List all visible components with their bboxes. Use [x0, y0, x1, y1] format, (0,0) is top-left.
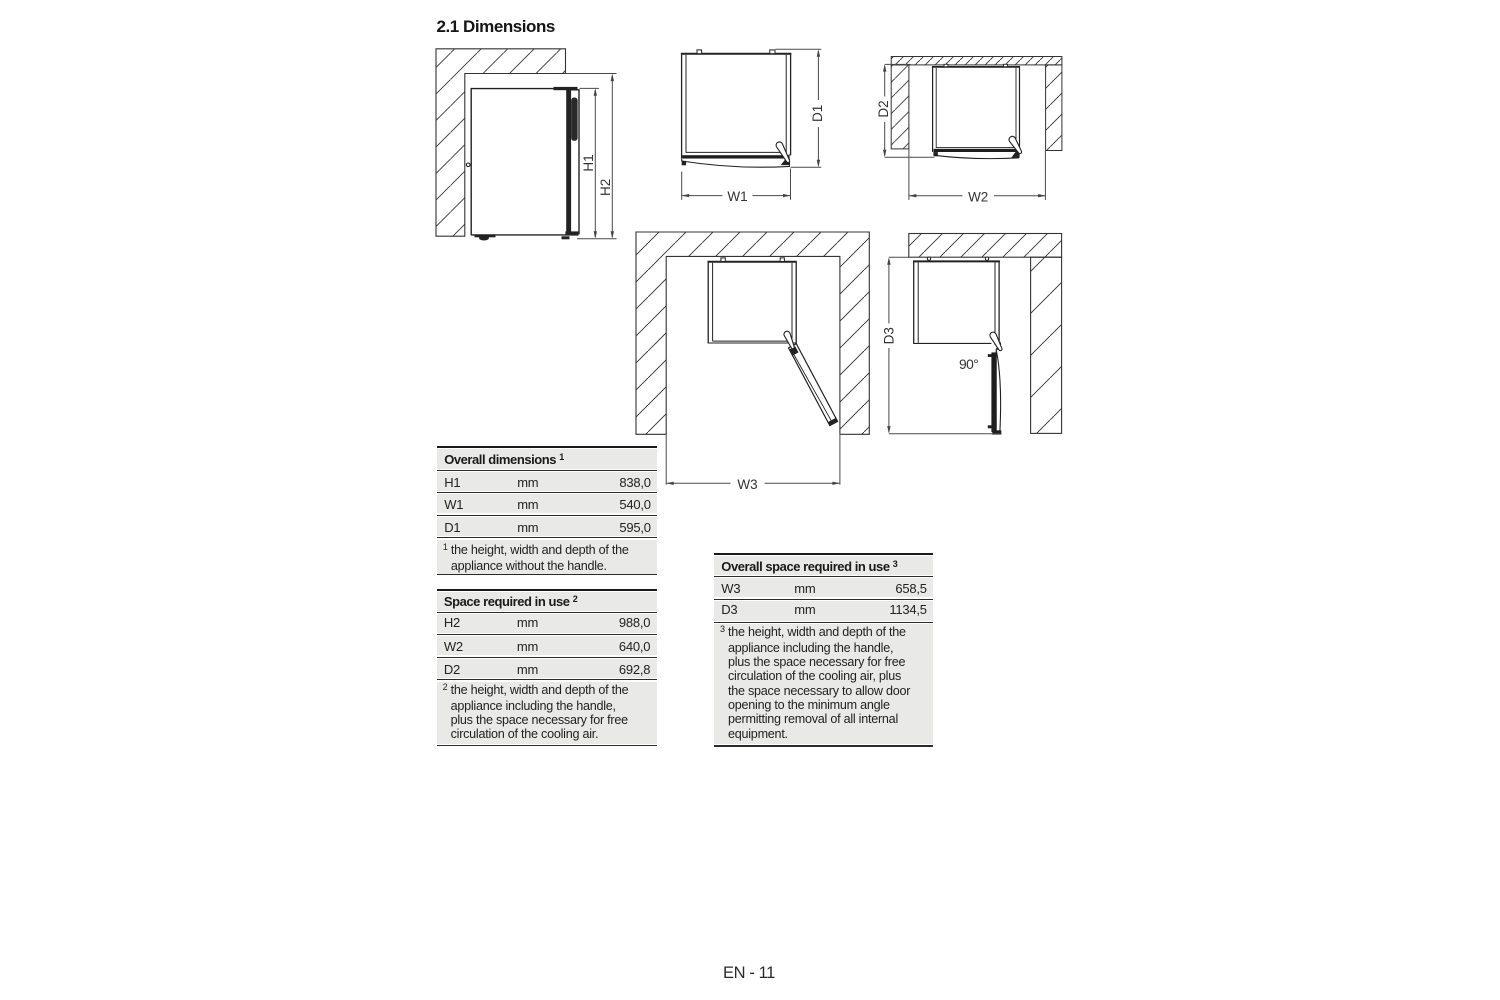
- svg-text:W2: W2: [968, 189, 988, 204]
- svg-text:D1: D1: [810, 105, 825, 122]
- svg-text:90°: 90°: [959, 357, 978, 372]
- svg-text:H1: H1: [581, 154, 596, 171]
- svg-text:H2: H2: [598, 179, 613, 196]
- svg-text:D2: D2: [876, 100, 891, 117]
- svg-text:W3: W3: [737, 477, 757, 492]
- svg-text:W1: W1: [727, 189, 747, 204]
- svg-text:D3: D3: [882, 327, 897, 344]
